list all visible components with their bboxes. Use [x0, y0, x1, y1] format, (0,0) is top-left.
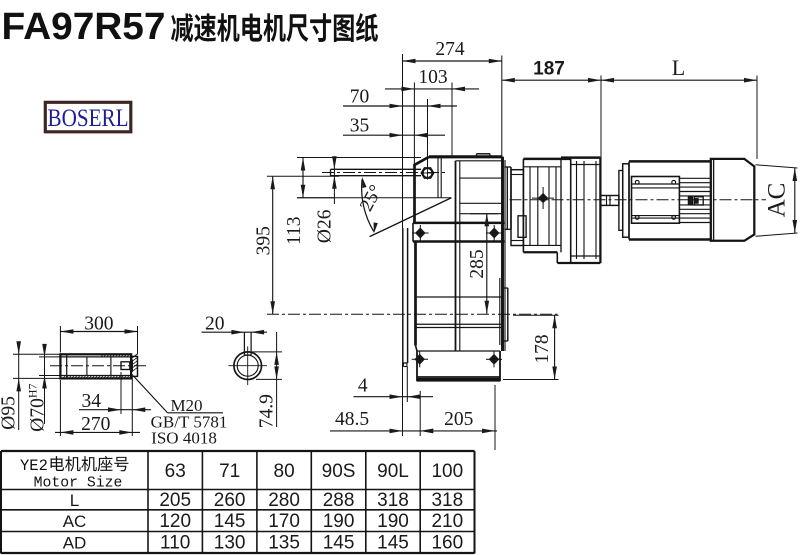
svg-text:288: 288 [323, 490, 355, 511]
svg-text:280: 280 [268, 490, 300, 511]
svg-text:210: 210 [431, 511, 463, 532]
svg-text:71: 71 [219, 461, 240, 482]
svg-text:110: 110 [160, 532, 190, 553]
svg-text:63: 63 [165, 461, 186, 482]
svg-text:135: 135 [268, 532, 300, 553]
svg-text:20: 20 [205, 314, 225, 335]
svg-text:318: 318 [431, 490, 463, 511]
svg-text:274: 274 [435, 39, 465, 60]
svg-text:160: 160 [431, 532, 463, 553]
svg-text:34: 34 [82, 391, 102, 412]
svg-text:74.9: 74.9 [257, 394, 278, 428]
svg-text:4: 4 [358, 376, 368, 397]
svg-text:Motor Size: Motor Size [34, 476, 123, 492]
svg-text:205: 205 [159, 490, 191, 511]
svg-text:AC: AC [764, 183, 791, 218]
svg-text:300: 300 [84, 314, 113, 335]
svg-text:90L: 90L [377, 461, 409, 482]
svg-text:113: 113 [284, 216, 305, 245]
svg-text:L: L [672, 55, 685, 80]
svg-text:ISO 4018: ISO 4018 [151, 429, 217, 448]
svg-text:Ø95: Ø95 [0, 396, 20, 430]
svg-text:AC: AC [63, 512, 87, 531]
svg-text:35: 35 [350, 116, 370, 137]
svg-text:48.5: 48.5 [335, 409, 369, 430]
svg-text:130: 130 [214, 532, 246, 553]
svg-text:170: 170 [268, 511, 300, 532]
svg-text:395: 395 [254, 226, 275, 255]
svg-text:178: 178 [532, 334, 553, 363]
svg-text:120: 120 [159, 511, 191, 532]
svg-text:YE2: YE2 [20, 457, 48, 475]
svg-text:Ø26: Ø26 [315, 209, 336, 243]
svg-text:260: 260 [214, 490, 246, 511]
svg-text:70: 70 [350, 87, 370, 108]
svg-text:AD: AD [63, 533, 87, 552]
svg-text:FA97R57: FA97R57 [2, 6, 166, 48]
svg-text:190: 190 [323, 511, 355, 532]
svg-text:80: 80 [274, 461, 295, 482]
svg-text:L: L [70, 491, 79, 510]
svg-text:145: 145 [323, 532, 355, 553]
svg-text:270: 270 [81, 414, 110, 435]
svg-text:145: 145 [214, 511, 246, 532]
svg-text:190: 190 [377, 511, 409, 532]
svg-text:318: 318 [377, 490, 409, 511]
svg-text:205: 205 [444, 409, 473, 430]
svg-text:90S: 90S [322, 461, 356, 482]
svg-text:145: 145 [377, 532, 409, 553]
svg-text:187: 187 [533, 59, 565, 80]
svg-text:100: 100 [431, 461, 463, 482]
svg-text:285: 285 [467, 249, 488, 278]
svg-text:103: 103 [418, 67, 447, 88]
svg-text:BOSERL: BOSERL [48, 105, 129, 132]
